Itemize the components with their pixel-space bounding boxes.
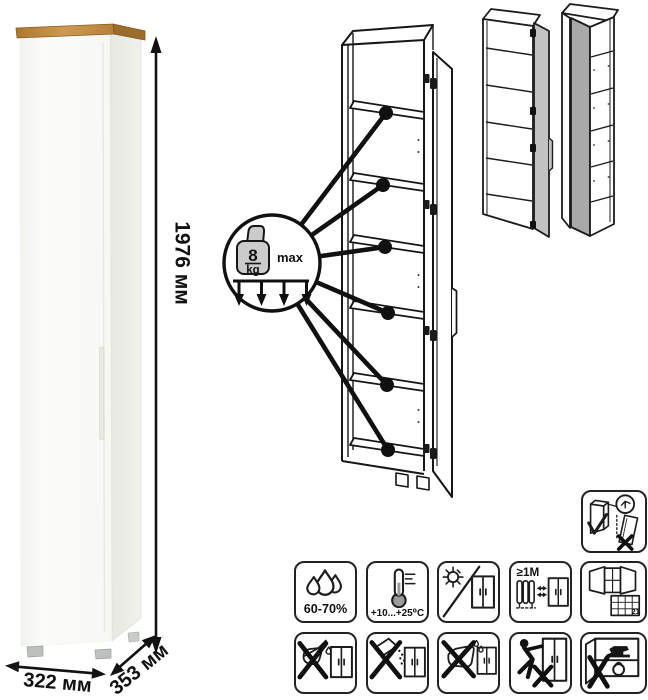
no-dragging-icon	[509, 632, 572, 694]
load-max-label: max	[277, 250, 304, 265]
no-abrasive-powder-icon	[366, 632, 429, 694]
temperature-label: +10...+25⁰C	[371, 608, 424, 619]
gray-door-left	[571, 18, 590, 236]
wardrobe-glyph	[549, 578, 568, 606]
calendar-day-label: 21	[632, 607, 640, 616]
shelf-load-diagram: 8 kg max	[205, 15, 475, 515]
wardrobe-glyph	[472, 576, 494, 607]
no-direct-sunlight-icon	[437, 561, 500, 623]
open-door	[433, 52, 452, 497]
max-load-badge: 8 kg max	[224, 215, 320, 311]
ventilation-calendar-icon: 21	[580, 561, 647, 623]
gray-door-right	[534, 23, 549, 237]
cabinet-foot	[27, 646, 43, 657]
depth-dimension: 353 мм	[106, 635, 173, 699]
humidity-drops-icon: 60-70%	[294, 561, 357, 623]
load-unit: kg	[246, 265, 259, 277]
door-handle-groove	[100, 347, 104, 440]
anti-tip-wall-mount-icon	[581, 490, 647, 553]
thermometer-icon: +10...+25⁰C	[366, 561, 429, 623]
product-photo-with-dimensions: 1976 мм 322 мм 353 мм	[0, 0, 210, 700]
width-dimension: 322 мм	[5, 661, 106, 697]
wardrobe-glyph	[331, 647, 352, 677]
cabinet-foot	[128, 632, 139, 642]
wardrobe-glyph	[405, 648, 425, 677]
no-liquids-icon	[294, 632, 357, 694]
variant-left-hinged	[562, 4, 618, 236]
no-overload-icon	[580, 632, 647, 694]
door-handle	[452, 288, 457, 337]
width-label: 322 мм	[22, 669, 92, 697]
window-sash	[621, 567, 636, 594]
product-diagram-page: 1976 мм 322 мм 353 мм	[0, 0, 648, 700]
heat-distance-icon: ≥1М	[509, 561, 572, 623]
no-wet-cleaning-icon	[437, 632, 500, 694]
humidity-label: 60-70%	[304, 602, 347, 616]
cabinet-foot	[95, 649, 111, 659]
cabinet-wireframe	[342, 25, 457, 497]
height-dimension: 1976 мм	[151, 36, 194, 654]
distance-label: ≥1М	[517, 566, 540, 579]
variant-right-hinged	[483, 9, 553, 237]
double-arrow-icon	[537, 586, 547, 597]
sun-icon	[448, 572, 458, 582]
door-variant-drawings	[476, 0, 648, 245]
cabinet-photo	[16, 24, 145, 659]
height-label: 1976 мм	[170, 221, 193, 305]
radiator-icon	[517, 581, 536, 608]
load-value: 8	[248, 246, 257, 265]
window-sash	[590, 567, 605, 594]
shelf-pointer-dots	[376, 106, 395, 457]
